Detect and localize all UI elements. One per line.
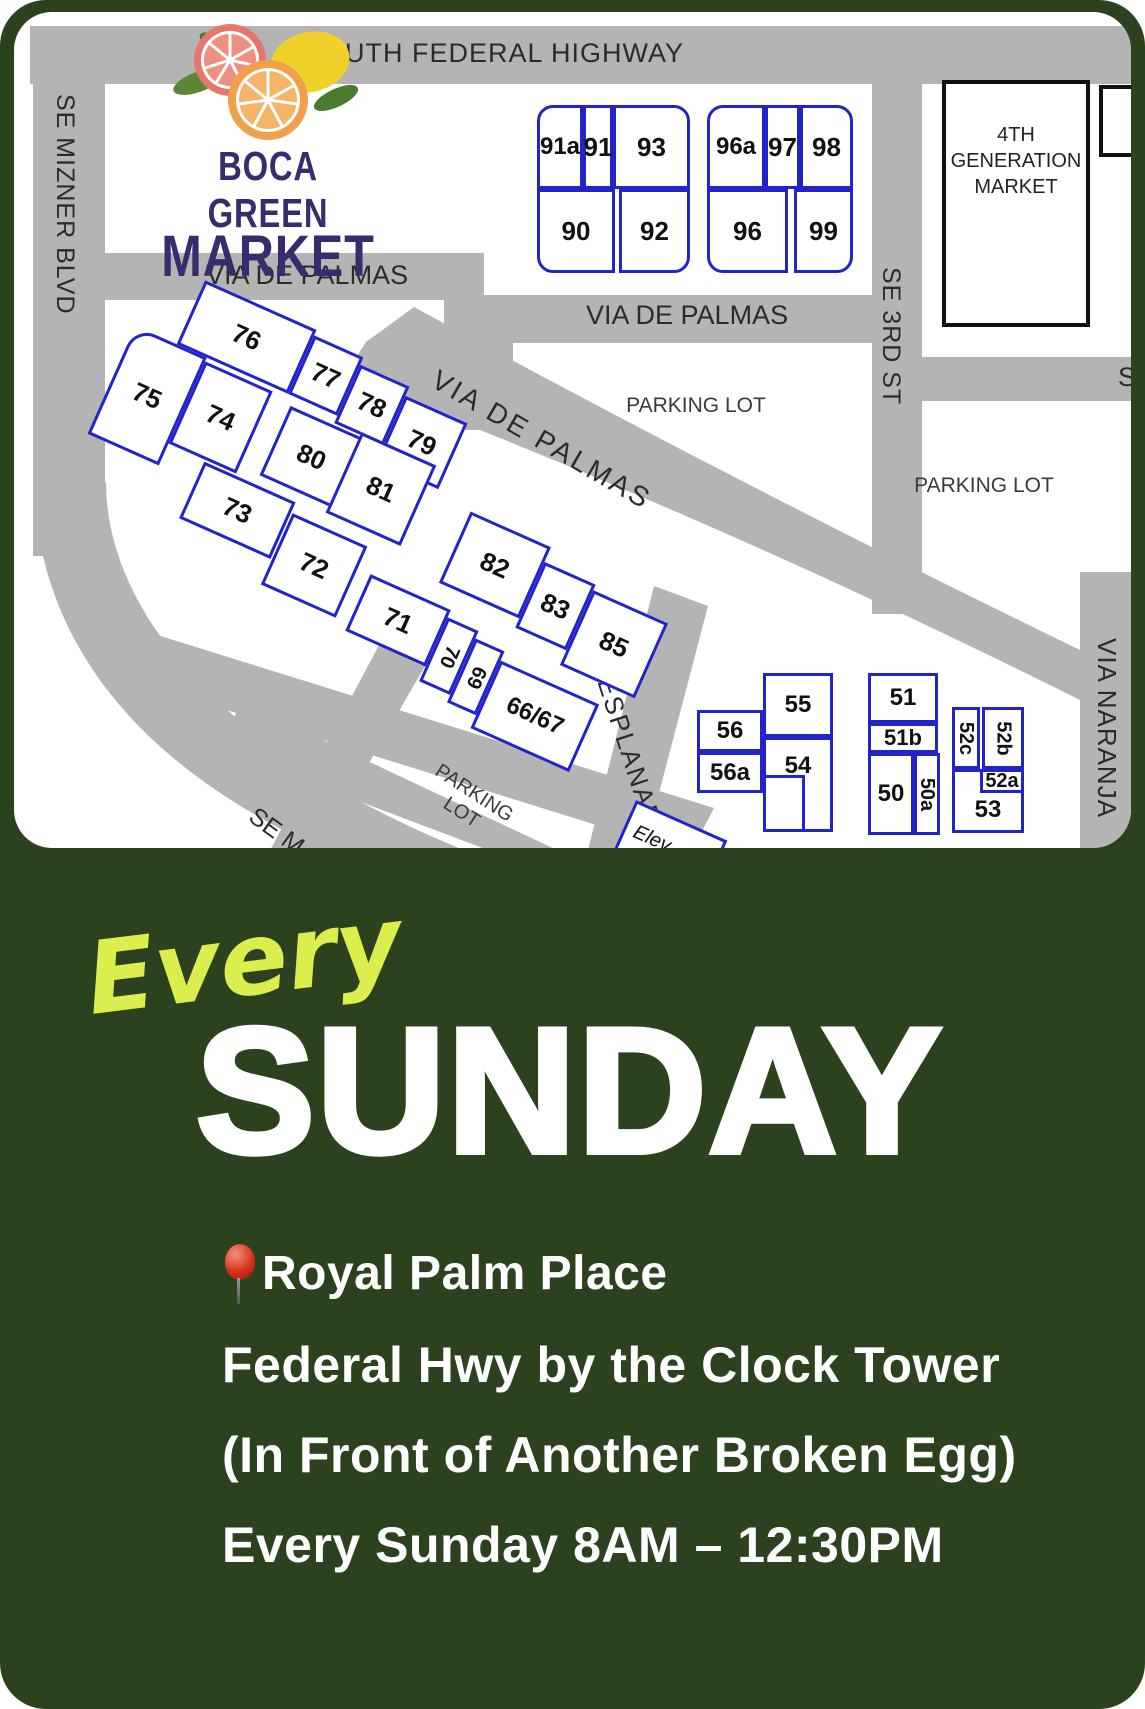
lot-91: 91 [583, 105, 613, 189]
lot-52a: 52a [980, 769, 1024, 793]
headline-sunday: SUNDAY [196, 988, 943, 1193]
lot-55: 55 [763, 673, 833, 737]
lot-92: 92 [619, 189, 690, 273]
parking-lot-label-west: PARKING LOT [626, 394, 766, 418]
lot-96a: 96a [707, 105, 765, 189]
lot-56a: 56a [697, 752, 763, 793]
lot-99: 99 [794, 189, 853, 273]
lot-52b: 52b [982, 707, 1024, 769]
street-label-via-naranja: VIA NARANJA [1091, 638, 1122, 818]
edge-building-box [1099, 85, 1131, 157]
street-label-via-de-palmas-east: VIA DE PALMAS [586, 300, 788, 331]
flyer-card: SOUTH FEDERAL HIGHWAY SE MIZNER BLVD VIA… [0, 0, 1145, 1709]
lot-96: 96 [707, 189, 788, 273]
lot-98: 98 [800, 105, 853, 189]
east-cross-road [912, 357, 1131, 401]
lot-97: 97 [765, 105, 800, 189]
lot-91a: 91a [537, 105, 583, 189]
citrus-fruits-icon [168, 20, 368, 142]
location-line3: (In Front of Another Broken Egg) [222, 1426, 1017, 1484]
lot-50a: 50a [914, 753, 940, 835]
elevator-label: Elev [630, 820, 675, 848]
map-card: SOUTH FEDERAL HIGHWAY SE MIZNER BLVD VIA… [14, 12, 1131, 848]
location-name: Royal Palm Place [262, 1246, 668, 1301]
lot-52c: 52c [952, 707, 980, 769]
fourth-generation-market-label: 4TH GENERATION MARKET [946, 84, 1086, 200]
lot-93: 93 [613, 105, 690, 189]
lot-90: 90 [537, 189, 615, 273]
location-line2: Federal Hwy by the Clock Tower [222, 1336, 1017, 1394]
street-label-s-partial: S [1118, 362, 1131, 393]
street-label-se-3rd-st: SE 3RD ST [876, 267, 905, 405]
location-name-line: Royal Palm Place [222, 1242, 1017, 1304]
street-label-se-mizner-blvd: SE MIZNER BLVD [50, 94, 79, 315]
lot-56: 56 [697, 710, 763, 752]
lot-50: 50 [868, 753, 914, 835]
event-details: Royal Palm Place Federal Hwy by the Cloc… [222, 1242, 1017, 1606]
boca-green-market-logo: BOCA GREEN MARKET [128, 20, 408, 290]
schedule-line: Every Sunday 8AM – 12:30PM [222, 1516, 1017, 1574]
lot-54-subunit [763, 775, 805, 832]
flyer-stage: SOUTH FEDERAL HIGHWAY SE MIZNER BLVD VIA… [0, 0, 1145, 1709]
parking-lot-label-east: PARKING LOT [914, 474, 1054, 498]
fourth-generation-market-box: 4TH GENERATION MARKET [942, 80, 1090, 327]
location-pin-icon [222, 1242, 258, 1304]
lot-51: 51 [868, 673, 938, 723]
lot-51b: 51b [868, 723, 938, 753]
